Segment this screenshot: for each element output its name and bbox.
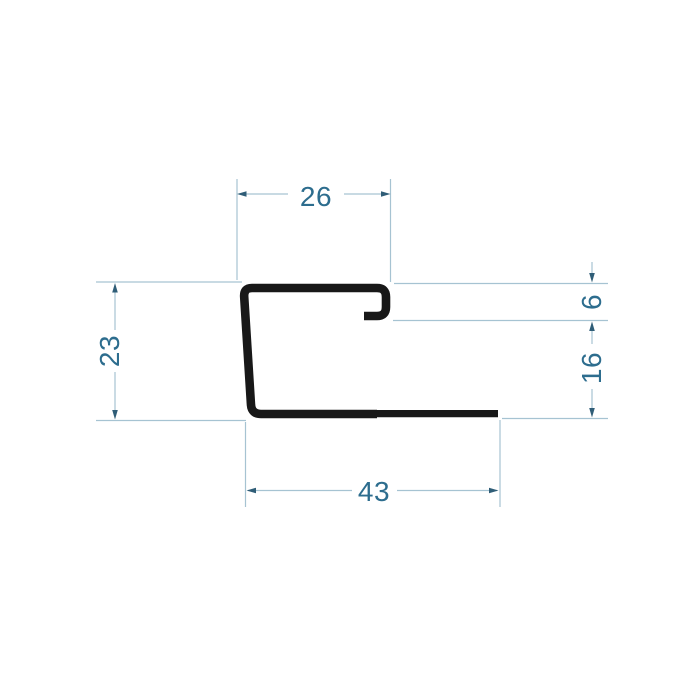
- dim-label-hook-height: 6: [576, 294, 607, 310]
- arrowhead-left-43: [247, 488, 257, 494]
- technical-drawing-canvas: 26 23 6 16 43: [0, 0, 700, 700]
- dim-label-right-lower-height: 16: [576, 352, 607, 384]
- profile-dimension-drawing: 26 23 6 16 43: [0, 0, 700, 700]
- dimension-lines-group: [96, 179, 608, 507]
- arrowhead-right-43: [489, 488, 499, 494]
- arrowhead-up-23: [112, 283, 118, 293]
- dimension-labels-group: 26 23 6 16 43: [94, 181, 607, 507]
- profile-group: [244, 288, 498, 414]
- dim-label-left-height: 23: [94, 335, 125, 367]
- dim-label-top-width: 26: [300, 181, 332, 212]
- arrowhead-down-16: [589, 408, 595, 418]
- arrowhead-down-6: [589, 273, 595, 283]
- arrowhead-right-26: [381, 191, 391, 197]
- arrowhead-down-23: [112, 410, 118, 420]
- arrowhead-left-26: [237, 191, 247, 197]
- profile-outline: [244, 288, 386, 414]
- dim-label-bottom-width: 43: [358, 476, 390, 507]
- arrowheads-group: [112, 191, 595, 493]
- arrowhead-up-16: [589, 322, 595, 332]
